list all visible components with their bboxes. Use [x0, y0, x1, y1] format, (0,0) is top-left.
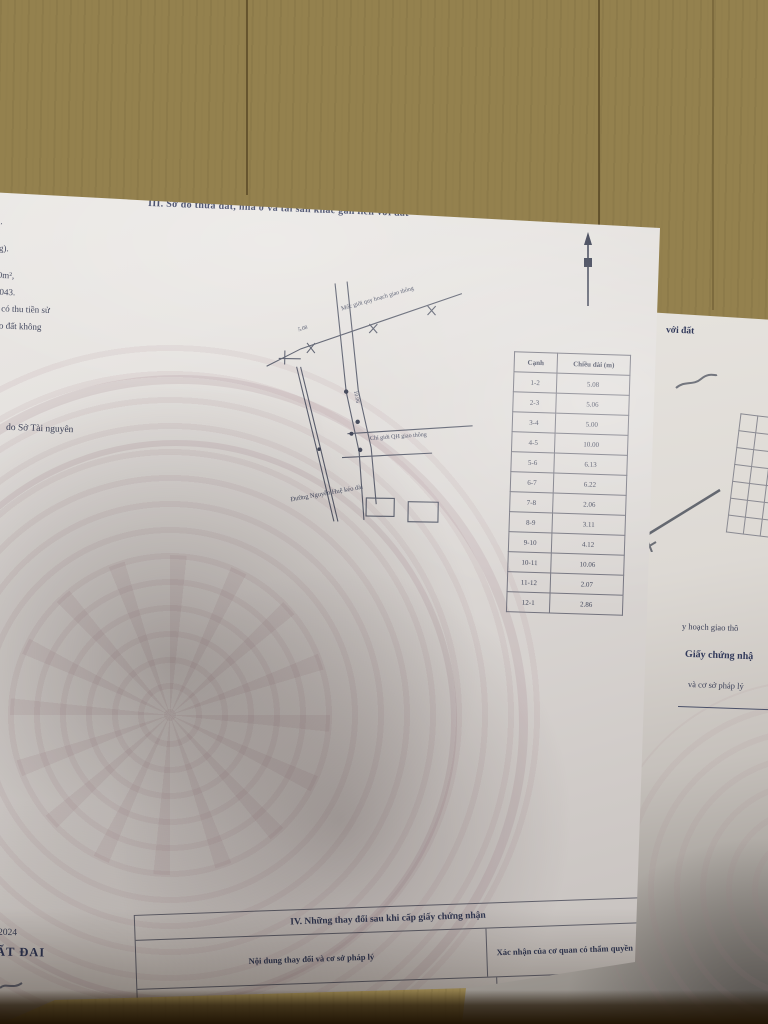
photo-scene: với đất y hoạch giao thô Giấy chứng nhậ …: [0, 0, 768, 1024]
edge-cell: 11-12: [521, 578, 537, 587]
edge-cell: 10-11: [521, 558, 537, 567]
left-fragment: đất có thu tiền sử: [0, 303, 50, 315]
left-fragment: ống).: [0, 243, 9, 254]
length-cell: 5.00: [586, 420, 598, 428]
pen-line-icon: [638, 482, 728, 552]
pen-scribble-icon: [673, 372, 719, 394]
length-col-header: Chiều dài (m): [573, 360, 614, 369]
plank-seam: [246, 0, 248, 195]
left-fragment: 0,0m²,: [0, 270, 14, 281]
edge-cell: 5-6: [528, 458, 538, 466]
length-cell: 10.00: [583, 440, 599, 448]
length-cell: 6.13: [584, 460, 596, 468]
length-cell: 5.08: [587, 380, 599, 388]
mini-edge-table: [726, 413, 768, 538]
edge-cell: 9-10: [524, 538, 537, 546]
left-fragment: giao đất không: [0, 320, 42, 332]
edge-length-table: Cạnh Chiều dài (m) 1-25.08 2-35.06 3-45.…: [506, 351, 631, 616]
cadastral-sketch: [246, 270, 491, 534]
right-page-fragment: và cơ sở pháp lý: [688, 679, 744, 691]
edge-col-header: Cạnh: [527, 358, 544, 367]
length-cell: 4.12: [582, 540, 594, 548]
length-cell: 2.06: [583, 500, 595, 508]
edge-cell: 2-3: [530, 398, 540, 406]
edge-cell: 1-2: [530, 378, 540, 386]
length-cell: 6.22: [584, 480, 596, 488]
left-fragment: 2043.: [0, 287, 15, 298]
bottom-fragment-stamp: ẤT ĐAI: [0, 945, 45, 961]
edge-cell: 8-9: [526, 518, 536, 526]
bottom-fragment-year: 2024: [0, 928, 17, 938]
watermark-star: [10, 555, 330, 875]
length-cell: 2.07: [581, 580, 593, 588]
edge-cell: 7-8: [527, 498, 537, 506]
left-fragment: ủa.: [0, 216, 3, 226]
edge-cell: 12-1: [522, 598, 535, 606]
plank-seam: [712, 0, 714, 310]
main-page: III. Sơ đồ thửa đất, nhà ở và tài sản kh…: [0, 100, 670, 1024]
length-cell: 5.06: [586, 400, 598, 408]
right-page-fragment: y hoạch giao thô: [682, 621, 739, 633]
length-cell: 10.06: [579, 560, 595, 568]
edge-cell: 3-4: [529, 418, 539, 426]
right-page-fragment: với đất: [666, 326, 695, 337]
edge-cell: 4-5: [528, 438, 538, 446]
right-page-fragment: Giấy chứng nhậ: [685, 649, 754, 662]
table-row: 12-12.86: [506, 592, 623, 616]
north-arrow-icon: [576, 230, 600, 310]
length-cell: 2.86: [580, 600, 592, 608]
floor-shadow-strip: [0, 990, 768, 1024]
length-cell: 3.11: [583, 520, 595, 528]
edge-cell: 6-7: [527, 478, 537, 486]
